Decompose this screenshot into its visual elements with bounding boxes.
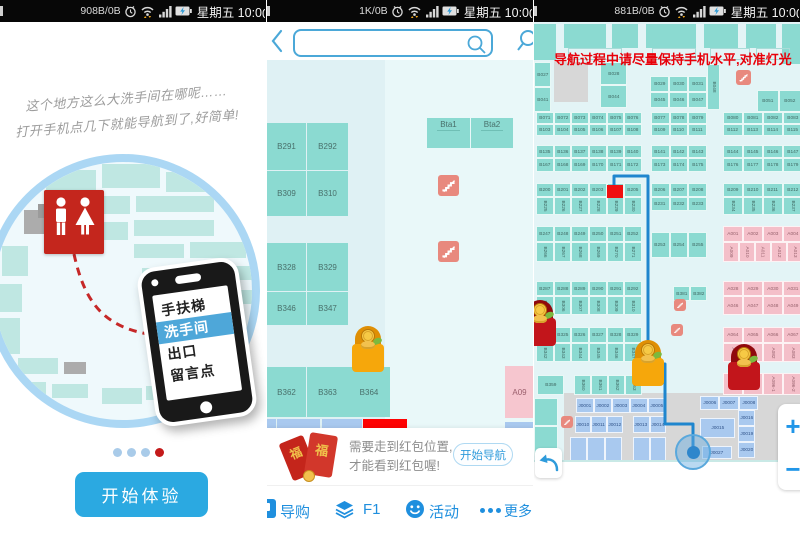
zoom-out-button[interactable]: − [785,456,800,482]
cluster-row: B176B177B178B179 [723,158,800,172]
store-block-B147[interactable]: B147 [783,145,800,158]
cluster-row: B167B168B169B170B171B172 [536,158,642,172]
escalator-icon [438,241,459,262]
clock-text: 星期五 10:00 [731,2,799,21]
store-block-B075[interactable]: B075 [607,112,625,124]
store-block-B347[interactable]: B347 [307,292,348,325]
store-block-B329[interactable]: B329 [307,243,348,291]
store-block-A011[interactable]: A011 [755,242,771,262]
store-block-B254[interactable]: B254 [670,232,689,258]
store-block-B225[interactable]: B225 [536,197,554,215]
store-block-B108[interactable]: B108 [624,124,642,136]
store-block-Bta1[interactable]: Bta1 [427,118,470,148]
store-block-B292[interactable]: B292 [307,123,348,170]
store-block-A067[interactable]: A067 [783,327,800,343]
store-block-J0012[interactable]: J0012 [607,416,623,433]
store-block-Bta2[interactable]: Bta2 [471,118,513,148]
store-block-J0010[interactable]: J0010 [575,416,591,433]
store-block-B047[interactable]: B047 [688,92,707,108]
store-block-B045[interactable]: B045 [650,92,669,108]
store-block-B138[interactable]: B138 [589,145,607,158]
alarm-icon [658,5,671,18]
store-block[interactable] [650,437,667,461]
store-block-B362[interactable]: B362 [267,367,306,417]
store-block-B083[interactable]: B083 [783,112,800,124]
store-block-B360[interactable]: B360 [574,375,591,395]
store-block-B208[interactable]: B208 [688,183,707,197]
store-block-B110[interactable]: B110 [670,124,689,136]
cluster-row: B112B113B114B115 [723,124,800,136]
store-cluster: J0006J0007J0008 [700,396,758,410]
map-illustration-block [0,382,46,400]
store-block-B105[interactable]: B105 [571,124,589,136]
store-block-J0004[interactable]: J0004 [630,398,648,413]
store-block-A083[interactable]: A083 [783,343,800,362]
store-block-B169[interactable]: B169 [571,158,589,172]
store-block-B167[interactable]: B167 [536,158,554,172]
cluster-row: B266B267B268B269B270B271 [536,242,642,262]
store-block[interactable] [605,437,622,461]
store-block-J0014[interactable]: J0014 [650,416,667,433]
store-block-A003[interactable]: A003 [763,226,783,242]
store-block-B361[interactable]: B361 [591,375,608,395]
storefront-block [564,24,606,48]
store-block-B364[interactable]: B364 [348,367,390,417]
store-block-B076[interactable]: B076 [624,112,642,124]
cluster-row: B048 [707,64,720,110]
store-block-B363[interactable]: B363 [307,367,348,417]
store-block-A028[interactable]: A028 [723,281,743,296]
store-block-B362[interactable]: B362 [608,375,625,395]
store-block-B209[interactable]: B209 [723,183,743,197]
store-block-A066[interactable]: A066 [763,327,783,343]
store-block-B226[interactable]: B226 [554,197,572,215]
store-block-B288[interactable]: B288 [554,281,572,296]
store-block-B345[interactable]: B345 [589,343,607,362]
store-block-J0003[interactable]: J0003 [277,419,320,428]
destination-marker [607,185,623,198]
store-block-A009[interactable]: A009 [723,242,739,262]
start-experience-button[interactable]: 开始体验 [75,472,208,517]
store-block-A029[interactable]: A029 [743,281,763,296]
store-block-B078[interactable]: B078 [670,112,689,124]
map-illustration-block [18,358,58,374]
store-block-J0013[interactable]: J0013 [633,416,650,433]
red-red-packet-mascot[interactable] [728,344,760,390]
store-block-B231[interactable]: B231 [651,197,670,211]
store-block-B230[interactable]: B230 [624,197,642,215]
battery-icon [175,5,192,17]
store-block-B346[interactable]: B346 [607,343,625,362]
cluster-row [633,437,666,461]
notification-icon-partial [534,6,537,16]
clock-text: 星期五 10:00 [197,2,265,21]
store-block-B106[interactable]: B106 [589,124,607,136]
store-block-B248[interactable]: B248 [554,226,572,242]
store-block-B142[interactable]: B142 [670,145,689,158]
cluster-row: B045B046B047 [650,92,707,108]
store-block-J0019[interactable]: J0019 [738,426,755,442]
store-block-B073[interactable]: B073 [571,112,589,124]
store-block-B210[interactable]: B210 [743,183,763,197]
store-block-B328[interactable]: B328 [267,243,306,291]
store-block[interactable] [587,437,604,461]
map-illustration-block [134,220,214,236]
onboarding-screen: 908B/0B 星期五 10:00 这个地方这么大洗手间在哪呢…… 打开手机点几… [0,0,266,533]
map-illustration-block [64,362,86,374]
clock-text: 星期五 10:00 [464,2,532,21]
cluster-row: B029B030B031 [650,76,707,92]
store-block-B267[interactable]: B267 [554,242,572,262]
store-block-B104[interactable]: B104 [554,124,572,136]
battery-icon [442,5,459,17]
store-block-B140[interactable]: B140 [624,145,642,158]
store-block-B250[interactable]: B250 [589,226,607,242]
smiley-icon [405,499,425,519]
store-block-B327[interactable]: B327 [589,327,607,343]
cluster-row [534,398,558,426]
signal-icon [158,5,172,18]
bottom-whitespace [534,462,800,533]
store-block-B287[interactable]: B287 [536,281,554,296]
red-packet-banner: 福 福 需要走到红包位置, 才能看到红包喔! 开始导航 [267,428,533,486]
store-block-B201[interactable]: B201 [554,183,572,197]
store-block-B137[interactable]: B137 [571,145,589,158]
zoom-in-button[interactable]: + [785,413,800,439]
store-block-B247[interactable]: B247 [536,226,554,242]
secondary-search-icon[interactable] [515,29,533,53]
store-block-B252[interactable]: B252 [624,226,642,242]
storefront-block [704,24,738,48]
store-block-B029[interactable]: B029 [650,76,669,92]
store-block-B309[interactable]: B309 [607,296,625,315]
cluster-row: A028A029A030A031 [723,281,800,296]
red-red-packet-mascot[interactable] [534,300,556,346]
store-block-B145[interactable]: B145 [743,145,763,158]
store-block-B111[interactable]: B111 [688,124,707,136]
alarm-icon [124,5,137,18]
store-block-B228[interactable]: B228 [589,197,607,215]
store-block-B077[interactable]: B077 [651,112,670,124]
wifi-icon [140,4,155,18]
store-block-B139[interactable]: B139 [607,145,625,158]
store-block-J0004[interactable]: J0004 [322,419,362,428]
search-icon[interactable] [466,34,487,55]
cluster-row: J0001J0002J0003J0004J0005 [576,398,666,413]
start-navigation-button[interactable]: 开始导航 [453,443,513,466]
store-block-J0002[interactable]: J0002 [594,398,612,413]
store-block-B041[interactable]: B041 [534,87,551,112]
store-block-B172[interactable]: B172 [624,158,642,172]
store-block-B178[interactable]: B178 [763,158,783,172]
store-block-B211[interactable]: B211 [763,183,783,197]
store-block-J0005[interactable]: J0005 [648,398,666,413]
navigation-notice-text: 导航过程中请尽量保持手机水平,对准灯光 [554,49,792,68]
store-block-J0016[interactable]: J0016 [738,410,755,426]
store-block-A002[interactable]: A002 [743,226,763,242]
store-block-A010[interactable]: A010 [739,242,755,262]
store-block-B079[interactable]: B079 [688,112,707,124]
store-cluster: B071B072B073B074B075B076B103B104B105B106… [536,112,642,136]
cluster-row: B103B104B105B106B107B108 [536,124,642,136]
banner-line-2: 才能看到红包喔! [349,457,452,476]
store-block-B310[interactable]: B310 [307,171,348,216]
floors-layers-icon [334,499,355,520]
store-block-B359[interactable]: B359 [537,375,564,395]
store-block-B030[interactable]: B030 [669,76,688,92]
store-block-A09[interactable]: A09 [505,366,533,418]
store-block-B346[interactable]: B346 [267,292,306,325]
store-block-B143[interactable]: B143 [688,145,707,158]
cluster-row: B200B201B202B203B205 [536,183,642,197]
store-block-B168[interactable]: B168 [554,158,572,172]
current-location-indicator [675,434,711,470]
store-block-B027[interactable]: B027 [534,62,551,87]
store-block-A064[interactable]: A064 [723,327,743,343]
store-block-B081[interactable]: B081 [743,112,763,124]
store-cluster: J0016J0019J0020 [738,410,755,458]
data-usage-text: 881B/0B [614,5,654,17]
store-block-B051[interactable]: B051 [757,90,779,112]
store-block-B074[interactable]: B074 [589,112,607,124]
store-block-A096-2[interactable]: A096-2 [783,373,800,395]
cluster-row: B225B226B227B228B229B230 [536,197,642,215]
map-block[interactable] [267,419,276,428]
cluster-row: J0020 [738,442,755,458]
escalator-icon [736,70,751,85]
map-edge-line [534,460,800,462]
store-block-B326[interactable]: B326 [571,327,589,343]
store-block-B251[interactable]: B251 [607,226,625,242]
store-block-J0003[interactable]: J0003 [612,398,630,413]
nav-item-activities[interactable]: 活动 [429,501,459,522]
store-block[interactable] [633,437,650,461]
store-block-B173[interactable]: B173 [651,158,670,172]
store-block-J0008[interactable]: J0008 [739,396,758,410]
store-block-B205[interactable]: B205 [624,183,642,197]
store-block-B291[interactable]: B291 [267,123,306,170]
store-block-B309[interactable]: B309 [267,171,306,216]
store-block-B146[interactable]: B146 [763,145,783,158]
data-usage-text: 1K/0B [359,5,388,17]
bottom-nav: 导购 F1 活动 更多 [267,485,533,533]
store-block-B325[interactable]: B325 [554,327,572,343]
store-cluster: B253B254B255 [651,232,707,258]
page-dot [113,448,122,457]
store-block-B144[interactable]: B144 [723,145,743,158]
store-cluster [570,437,622,461]
wifi-icon [674,4,689,18]
store-block-B113[interactable]: B113 [743,124,763,136]
cluster-row: B041 [534,87,551,112]
store-block-B234[interactable]: B234 [723,197,743,215]
store-block-A065[interactable]: A065 [743,327,763,343]
escalator-icon [438,175,459,196]
store-block-B271[interactable]: B271 [624,242,642,262]
store-block-B082[interactable]: B082 [763,112,783,124]
banner-line-1: 需要走到红包位置, [349,438,452,457]
store-block-B229[interactable]: B229 [607,197,625,215]
map-illustration-block [136,196,214,212]
nav-item-guide[interactable]: 导购 [280,501,310,522]
store-block-B046[interactable]: B046 [669,92,688,108]
store-block-B307[interactable]: B307 [571,296,589,315]
store-block-A046[interactable]: A046 [723,296,743,315]
map-illustration-block [0,284,22,312]
store-cluster: A001A002A003A004A009A010A011A012A013 [723,226,800,262]
store-block-B289[interactable]: B289 [571,281,589,296]
store-block-A031[interactable]: A031 [783,281,800,296]
store-block-B176[interactable]: B176 [723,158,743,172]
store-cluster: B027B041 [534,62,551,112]
store-block-A004[interactable]: A004 [783,226,800,242]
store-block-B044[interactable]: B044 [600,85,627,108]
store-block-J0020[interactable]: J0020 [738,442,755,458]
page-dot [141,448,150,457]
cluster-row: A001A002A003A004 [723,226,800,242]
store-cluster: J0001J0002J0003J0004J0005 [576,398,666,413]
store-block-B232[interactable]: B232 [670,197,689,211]
store-block-B203[interactable]: B203 [589,183,607,197]
store-block-B212[interactable]: B212 [783,183,800,197]
store-block-B109[interactable]: B109 [651,124,670,136]
store-block-B135[interactable]: B135 [536,145,554,158]
wifi-icon [407,4,422,18]
store-block-A048[interactable]: A048 [763,296,783,315]
cluster-row: B234B235B236B237 [723,197,800,215]
store-block-B233[interactable]: B233 [688,197,707,211]
store-block-B227[interactable]: B227 [571,197,589,215]
store-block-B071[interactable]: B071 [536,112,554,124]
map-illustration-block [2,246,28,276]
signal-icon [692,5,706,18]
store-block-B249[interactable]: B249 [571,226,589,242]
store-block-A047[interactable]: A047 [743,296,763,315]
store-block-B115[interactable]: B115 [783,124,800,136]
store-block-B114[interactable]: B114 [763,124,783,136]
store-block-B266[interactable]: B266 [536,242,554,262]
phone-home-button [199,401,213,415]
store-block-B344[interactable]: B344 [571,343,589,362]
store-block-B270[interactable]: B270 [607,242,625,262]
store-block-B206[interactable]: B206 [651,183,670,197]
store-block-B207[interactable]: B207 [670,183,689,197]
escalator-icon [561,416,573,428]
storefront-block [646,24,696,48]
nav-item-more[interactable]: 更多 [504,501,532,521]
store-cluster: B028B044 [600,62,627,108]
store-block-B052[interactable]: B052 [779,90,800,112]
corridor-gray-area [554,62,588,102]
store-block-B235[interactable]: B235 [743,197,763,215]
store-block[interactable] [570,437,587,461]
store-block-B080[interactable]: B080 [723,112,743,124]
store-block-B291[interactable]: B291 [607,281,625,296]
store-block-B237[interactable]: B237 [783,197,800,215]
store-block-B031[interactable]: B031 [688,76,707,92]
store-block-B290[interactable]: B290 [589,281,607,296]
store-block-B255[interactable]: B255 [688,232,707,258]
cluster-row: B080B081B082B083 [723,112,800,124]
store-block-B179[interactable]: B179 [783,158,800,172]
store-block-B292[interactable]: B292 [624,281,642,296]
store-block-J0015[interactable]: J0015 [700,418,735,438]
store-block-B112[interactable]: B112 [723,124,743,136]
store-block-B136[interactable]: B136 [554,145,572,158]
store-block-J0006[interactable]: J0006 [700,396,719,410]
store-block-B048[interactable]: B048 [707,64,720,110]
cluster-row: A046A047A048A049 [723,296,800,315]
store-block-A012[interactable]: A012 [771,242,787,262]
back-chevron-icon[interactable] [269,28,285,54]
store-block-B103[interactable]: B103 [536,124,554,136]
store-block-A096-1[interactable]: A096-1 [763,373,783,395]
store-block-J0011[interactable]: J0011 [591,416,607,433]
store-block-B177[interactable]: B177 [743,158,763,172]
store-block-B308[interactable]: B308 [589,296,607,315]
restroom-figures-icon [44,190,104,254]
phone-camera-dot [151,279,159,287]
store-block-B107[interactable]: B107 [607,124,625,136]
store-block-B175[interactable]: B175 [688,158,707,172]
store-block-J0001[interactable]: J0001 [576,398,594,413]
escalator-icon [674,299,686,311]
store-block-A001[interactable]: A001 [723,226,743,242]
store-cluster: J0013J0014 [633,416,666,433]
store-block-B253[interactable]: B253 [651,232,670,258]
map-illustration-block [102,164,160,188]
store-block-B202[interactable]: B202 [571,183,589,197]
store-cluster: B209B210B211B212B234B235B236B237 [723,183,800,215]
cluster-row: J0006J0007J0008 [700,396,758,410]
store-block-B072[interactable]: B072 [554,112,572,124]
search-box[interactable] [293,29,493,57]
store-block-A049[interactable]: A049 [783,296,800,315]
store-block-B170[interactable]: B170 [589,158,607,172]
store-block-B200[interactable]: B200 [536,183,554,197]
page-dot [155,448,164,457]
store-block-B171[interactable]: B171 [607,158,625,172]
store-block-J0007[interactable]: J0007 [719,396,738,410]
map-block[interactable] [363,419,407,428]
store-block-B268[interactable]: B268 [571,242,589,262]
store-block-B382[interactable]: B382 [690,286,707,301]
back-button[interactable] [535,448,562,478]
shopping-guide-icon [267,499,276,518]
store-cluster: B048 [707,64,720,110]
battery-icon [709,5,726,17]
store-block-B343[interactable]: B343 [554,343,572,362]
banner-text: 需要走到红包位置, 才能看到红包喔! [349,438,452,476]
store-block-B141[interactable]: B141 [651,145,670,158]
store-block-B236[interactable]: B236 [763,197,783,215]
store-block-B310[interactable]: B310 [624,296,642,315]
nav-item-floor[interactable]: F1 [363,501,381,518]
cluster-row: B109B110B111 [651,124,707,136]
store-block-B306[interactable]: B306 [554,296,572,315]
search-input[interactable] [301,33,465,55]
navigation-map-screen: 881B/0B 星期五 10:00 B027B041B028B044B029B0… [534,0,800,533]
gold-red-packet-mascot[interactable] [352,326,384,372]
gold-red-packet-mascot[interactable] [632,340,664,386]
store-block[interactable] [534,398,558,426]
store-block-B269[interactable]: B269 [589,242,607,262]
store-block-A013[interactable]: A013 [787,242,800,262]
store-block-B174[interactable]: B174 [670,158,689,172]
store-block-A082[interactable]: A082 [763,343,783,362]
store-block-B328[interactable]: B328 [607,327,625,343]
store-block-A030[interactable]: A030 [763,281,783,296]
